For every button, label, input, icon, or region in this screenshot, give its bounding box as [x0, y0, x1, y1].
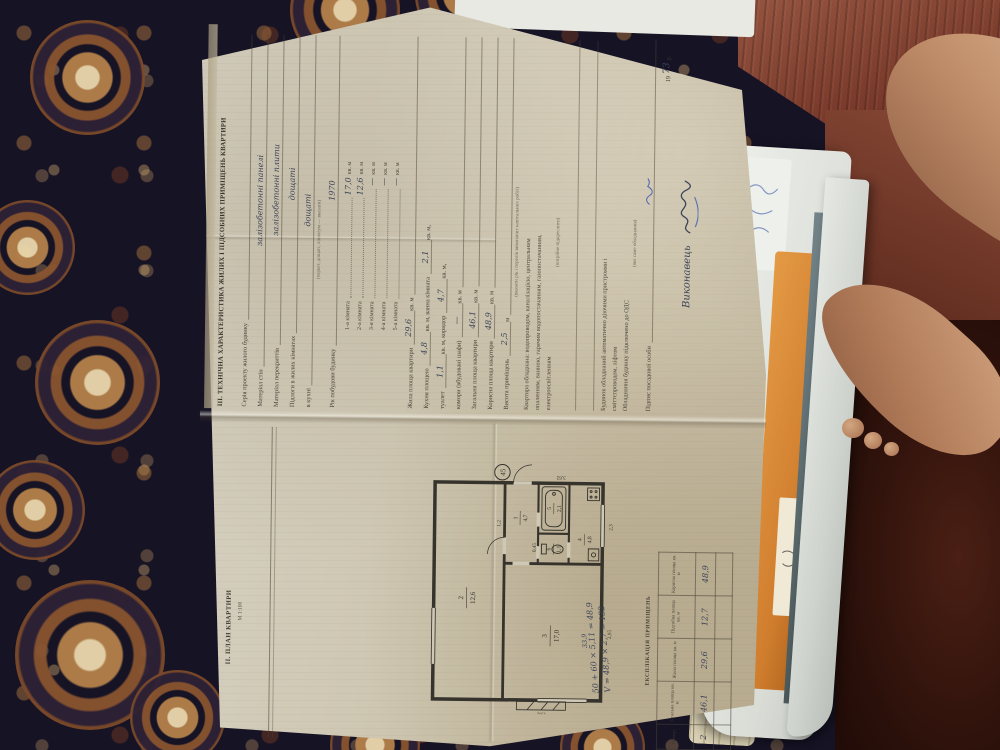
form-line: Висота приміщень 2,5 м [499, 38, 515, 410]
dotted-leader [366, 189, 376, 299]
toe [884, 442, 899, 456]
form-text-line: опаленням, ванною, гарячим водопостачанн… [534, 38, 546, 410]
handwritten-value: дощаті [303, 194, 312, 227]
field-value-line [453, 37, 467, 287]
table-empty-row [713, 553, 732, 750]
floor-plan-svg: 45 2 12,6 3 17,0 1 4,7 [418, 461, 617, 715]
carpet-flower [30, 20, 145, 135]
field-value-line [485, 38, 499, 288]
handwritten-value: залізобетонні плити [271, 144, 281, 236]
field-label: Жила площа квартири [407, 345, 415, 409]
date-suffix: р. [665, 56, 672, 61]
photo-scene: ІІ. ПЛАН КВАРТИРИ М 1:100 [0, 0, 1000, 750]
svg-text:0,45: 0,45 [532, 543, 538, 553]
date-line: 19 73 р. [658, 56, 672, 418]
unit-label: кв. м [371, 162, 377, 178]
field-value-line: — [452, 303, 463, 337]
room-name: 2-а кімната [357, 301, 363, 330]
drawing-frame-line [268, 427, 277, 737]
field-label: Висота приміщень [503, 356, 511, 410]
date-printed: 19 [665, 76, 672, 82]
room-row: 2-а кімната12,6кв. м [354, 162, 365, 330]
unit-label: кв. м [383, 162, 389, 178]
room-row: 3-я кімната—кв. м [366, 162, 377, 330]
value-cell: 46,1 [694, 682, 715, 725]
field-label: Підпис посадової особи [645, 343, 653, 412]
field-value-line [238, 35, 252, 321]
header-cell: Корисна площа кв. м [658, 552, 696, 595]
room-name: 5-а кімната [393, 302, 399, 331]
form-line: в кухні дощаті [301, 35, 317, 407]
form-line: Загальна площа квартири 46,1 кв. м [467, 37, 483, 409]
svg-text:1,1: 1,1 [556, 545, 562, 552]
field-value-line: дощаті [301, 35, 316, 385]
field-label: Рік побудови будинку [329, 346, 337, 408]
dotted-leader [390, 189, 400, 299]
field-value-line [404, 37, 418, 295]
svg-text:1: 1 [513, 516, 519, 519]
form-line: Матеріал перекриттів залізобетонні плити [269, 35, 285, 407]
field-value-line: 4,7 [436, 279, 447, 313]
room-label: 4 4,8 [577, 534, 593, 545]
svg-text:5: 5 [547, 507, 553, 510]
form-title: ІІІ. ТЕХНІЧНА ХАРАКТЕРИСТИКА ЖИЛИХ І ПІД… [217, 28, 229, 406]
field-value-line [500, 38, 514, 315]
field-label: Загальна площа квартири [471, 337, 479, 410]
handwritten-value: — [452, 316, 461, 324]
field-label: кв. м, [441, 261, 448, 279]
field-value-line: 4,8 [420, 331, 431, 365]
form-note: (паркет, дощаті, лінолеум — вказати) [315, 65, 324, 413]
room-name: 4-а кімната [381, 302, 387, 331]
plan-page: ІІ. ПЛАН КВАРТИРИ М 1:100 [196, 418, 766, 745]
table-value-row: 2 46,1 29,6 12,7 48,9 [693, 553, 715, 750]
handwritten-value: залізобетонні панелі [255, 155, 265, 246]
calc-correction: 33,9 [579, 633, 590, 648]
field-value-line: 48,9 [484, 304, 495, 338]
room-label: 2 12,6 [457, 587, 477, 608]
walls [432, 482, 603, 701]
executor-signature: Виконавець [675, 30, 700, 308]
toe [864, 432, 882, 449]
value-cell: 12,7 [695, 596, 716, 639]
svg-text:3: 3 [541, 634, 549, 638]
handwritten-value: 46,1 [468, 311, 477, 329]
blank-ruled-line [564, 40, 581, 410]
form-note: (вказати рік і перелік виконаних капітал… [513, 68, 522, 416]
field-label: кв. м, ванна кімната [424, 274, 432, 331]
svg-text:3,62: 3,62 [556, 474, 566, 480]
field-label: Серія проекту жилого будинку [241, 320, 249, 407]
header-cell: Жила площа кв. м [657, 638, 695, 681]
sink-icon [588, 549, 599, 561]
unit-label: кв. м [408, 294, 415, 310]
form-text-line: Квартира обладнана: водопроводом, каналі… [523, 38, 535, 410]
unit-label: кв. м [472, 286, 479, 302]
form-line: Рік побудови будинку 1970 [325, 36, 341, 408]
field-label: Матеріал перекриттів [273, 345, 281, 407]
field-label: Матеріал стін [257, 366, 264, 407]
executor-label: Виконавець [681, 245, 693, 308]
unit-label: кв. м [488, 288, 495, 304]
carpet-flower [0, 460, 85, 560]
form-line: Підлоги в жилих кімнатах дощаті [285, 35, 301, 407]
svg-text:4,7: 4,7 [523, 514, 529, 521]
field-label: туалет [439, 388, 446, 409]
bare-foot [750, 80, 1000, 560]
field-value-line [469, 37, 483, 286]
form-line: Матеріал стін залізобетонні панелі [253, 35, 269, 407]
handwritten-value: 2,1 [421, 251, 430, 264]
header-cell: Поверх [656, 724, 693, 749]
handwritten-value: 29,6 [404, 319, 413, 337]
field-value-line: 46,1 [468, 303, 479, 337]
form-page: ІІІ. ТЕХНІЧНА ХАРАКТЕРИСТИКА ЖИЛИХ І ПІД… [200, 24, 771, 419]
handwritten-value: 17,0 [344, 177, 353, 195]
field-label: кв. м, [425, 222, 432, 240]
handwritten-value: 4,7 [436, 289, 445, 302]
room-row: 5-а кімната—кв. м [390, 162, 401, 330]
handwritten-value: — [392, 178, 401, 186]
dotted-leader [378, 189, 388, 299]
handwritten-value: 2,5 [500, 332, 509, 345]
form-line: туалет 1,1 кв. м, коридор 4,7 кв. м, [435, 37, 451, 409]
explication-table: Поверх Загальна площа кв. м Жила площа к… [656, 552, 733, 750]
table-header-row: Поверх Загальна площа кв. м Жила площа к… [656, 552, 695, 749]
handwritten-value: 48,9 [484, 312, 493, 330]
field-value-line: залізобетонні панелі [254, 35, 269, 367]
field-value-line: 2,1 [421, 240, 432, 274]
handwritten-value: 1,1 [435, 365, 444, 378]
svg-text:1,62: 1,62 [537, 711, 547, 715]
passport-spread: ІІ. ПЛАН КВАРТИРИ М 1:100 [196, 22, 771, 745]
plan-heading: ІІ. ПЛАН КВАРТИРИ [225, 590, 233, 665]
room-name: 1-а кімната [345, 301, 351, 330]
unit-label: кв. м [359, 162, 365, 178]
field-value-line: 2,5 [500, 322, 511, 356]
value-cell: 29,6 [694, 639, 715, 682]
field-label: Підлоги в жилих кімнатах [289, 333, 297, 408]
handwritten-value: — [368, 178, 377, 186]
field-label: в кухні [305, 385, 312, 407]
header-cell: Підсобна площа кв. м [658, 595, 696, 638]
handwritten-value: 4,8 [420, 342, 429, 355]
apartment-number-badge: 45 [495, 464, 511, 480]
room-label: 3 17,0 [541, 625, 561, 646]
explication-title: ЕКСПЛІКАЦІЯ ПРИМІЩЕНЬ [645, 596, 652, 686]
field-label: Кухня площею [423, 365, 431, 409]
svg-text:4,8: 4,8 [587, 536, 593, 543]
dotted-leader [354, 198, 364, 298]
form-text-line: Будинок обладнаний автоматично діючими п… [600, 39, 612, 411]
unit-label: кв. м [395, 162, 401, 178]
blank-ruled-line [582, 41, 599, 411]
field-label: кв. м [456, 287, 463, 303]
svg-text:4: 4 [577, 538, 583, 541]
room-label: 5 2,1 [547, 503, 563, 514]
toe [842, 418, 864, 438]
value-cell: 2 [693, 725, 713, 750]
svg-text:12,6: 12,6 [469, 591, 477, 604]
room-label: 1 4,7 [513, 511, 529, 525]
svg-text:1,2: 1,2 [496, 520, 502, 527]
form-text-line: сміттєпроводом, ліфтом [611, 39, 623, 411]
form-line: Підпис посадової особи [641, 39, 657, 411]
svg-text:17,0: 17,0 [552, 629, 560, 642]
room-name: 3-я кімната [369, 301, 375, 330]
form-line: Кухня площею 4,8 кв. м, ванна кімната 2,… [419, 37, 435, 409]
door-arcs [487, 464, 531, 554]
form-line: комори (вбудовані шафи) — кв. м [451, 37, 467, 409]
form-line: Серія проекту жилого будинку [237, 35, 253, 407]
room-row: 4-а кімната—кв. м [378, 162, 389, 330]
stove-icon [588, 488, 600, 501]
field-label: Корисна площа квартири [487, 338, 495, 410]
svg-text:2: 2 [457, 595, 465, 599]
field-label: кв. м, коридор [440, 313, 448, 355]
scale-label: М 1:100 [237, 602, 243, 621]
balcony [516, 701, 565, 710]
header-cell: Загальна площа кв. м [657, 681, 695, 724]
value-cell: 48,9 [695, 553, 716, 596]
handwritten-value: 12,6 [356, 177, 365, 195]
field-value-line: залізобетонні плити [270, 35, 285, 345]
form-line: Жила площа квартири 29,6 кв. м [403, 37, 419, 409]
handwritten-year: 73 [662, 62, 672, 74]
handwritten-value: дощаті [288, 167, 297, 200]
signature-line [642, 39, 657, 343]
form-line: Корисна площа квартири 48,9 кв. м [483, 38, 499, 410]
ink-signature [676, 177, 699, 237]
handwritten-value: 1970 [328, 180, 337, 200]
svg-text:6: 6 [547, 547, 553, 550]
unit-label: м [504, 315, 511, 322]
field-value-line: 1,1 [435, 354, 446, 388]
handwritten-value: — [380, 178, 389, 186]
room-row: 1-а кімната17,0кв. м [342, 162, 353, 330]
ink-mark [644, 176, 653, 206]
carpet-flower [35, 320, 160, 445]
svg-text:2,3: 2,3 [608, 524, 614, 531]
field-value-line: 1970 [326, 36, 341, 346]
unit-label: кв. м [347, 162, 353, 178]
field-value-line: дощаті [286, 35, 301, 333]
svg-text:2,1: 2,1 [557, 505, 563, 512]
carpet-flower [0, 200, 75, 295]
field-label: комори (вбудовані шафи) [455, 338, 463, 410]
field-value-line: 29,6 [404, 311, 415, 345]
windows [431, 503, 605, 703]
svg-text:45: 45 [499, 468, 507, 476]
dotted-leader [342, 198, 352, 298]
